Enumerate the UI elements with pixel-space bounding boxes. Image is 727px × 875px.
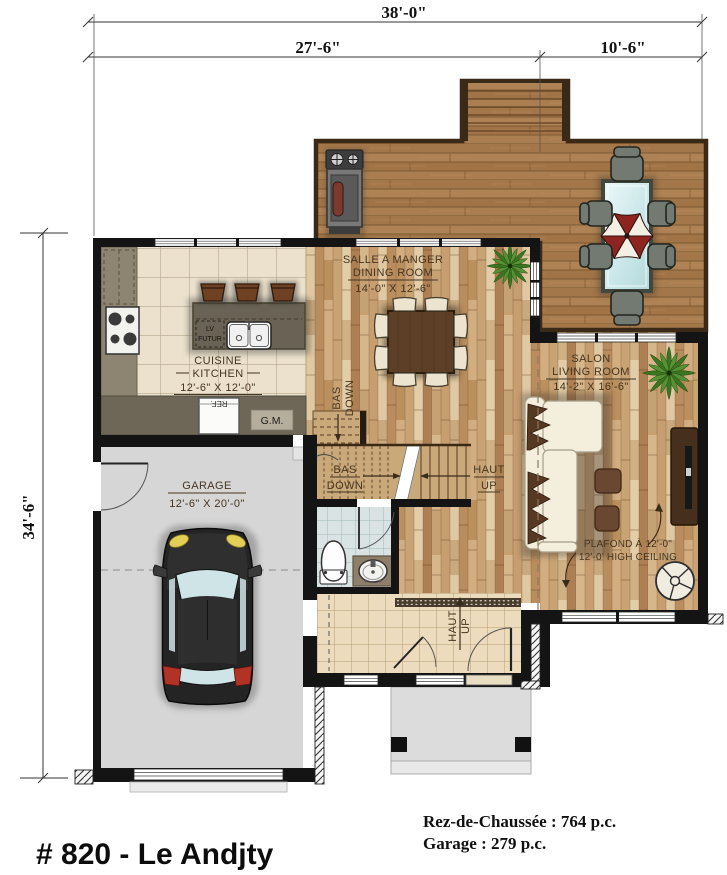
svg-text:FUTUR: FUTUR [198, 336, 222, 343]
svg-text:GARAGE: GARAGE [182, 480, 231, 492]
svg-text:UP: UP [481, 480, 497, 492]
svg-text:Rez-de-Chaussée : 764 p.c.: Rez-de-Chaussée : 764 p.c. [423, 812, 616, 831]
svg-text:12'-0' HIGH CEILING: 12'-0' HIGH CEILING [579, 552, 677, 563]
svg-text:14'-2" X 16'-6": 14'-2" X 16'-6" [553, 381, 629, 393]
svg-text:12'-6" X 20'-0": 12'-6" X 20'-0" [169, 498, 245, 510]
svg-text:REF.: REF. [210, 399, 227, 408]
svg-text:BAS: BAS [333, 464, 356, 476]
svg-text:UP: UP [460, 618, 472, 634]
svg-text:SALLE A MANGER: SALLE A MANGER [343, 254, 443, 266]
svg-text:38'-0": 38'-0" [381, 3, 426, 22]
svg-text:12'-6" X 12'-0": 12'-6" X 12'-0" [180, 382, 256, 394]
svg-text:DINING ROOM: DINING ROOM [353, 267, 433, 279]
svg-text:SALON: SALON [571, 353, 610, 365]
svg-text:LIVING ROOM: LIVING ROOM [552, 366, 630, 378]
svg-text:34'-6": 34'-6" [19, 494, 38, 539]
svg-text:BAS: BAS [331, 386, 343, 409]
svg-text:10'-6": 10'-6" [600, 38, 645, 57]
svg-text:LV: LV [206, 326, 214, 333]
svg-text:HAUT: HAUT [473, 464, 505, 476]
svg-text:DOWN: DOWN [344, 380, 356, 416]
svg-text:PLAFOND À 12'-0": PLAFOND À 12'-0" [584, 537, 672, 550]
svg-text:14'-0" X 12'-6": 14'-0" X 12'-6" [355, 283, 431, 295]
svg-text:G.M.: G.M. [261, 415, 284, 427]
svg-text:CUISINE: CUISINE [194, 355, 241, 367]
svg-text:# 820 - Le Andjty: # 820 - Le Andjty [36, 838, 274, 871]
svg-text:27'-6": 27'-6" [295, 38, 340, 57]
svg-text:Garage : 279 p.c.: Garage : 279 p.c. [423, 834, 546, 853]
svg-text:HAUT: HAUT [447, 610, 459, 642]
svg-text:KITCHEN: KITCHEN [192, 368, 243, 380]
svg-text:DOWN: DOWN [327, 480, 363, 492]
